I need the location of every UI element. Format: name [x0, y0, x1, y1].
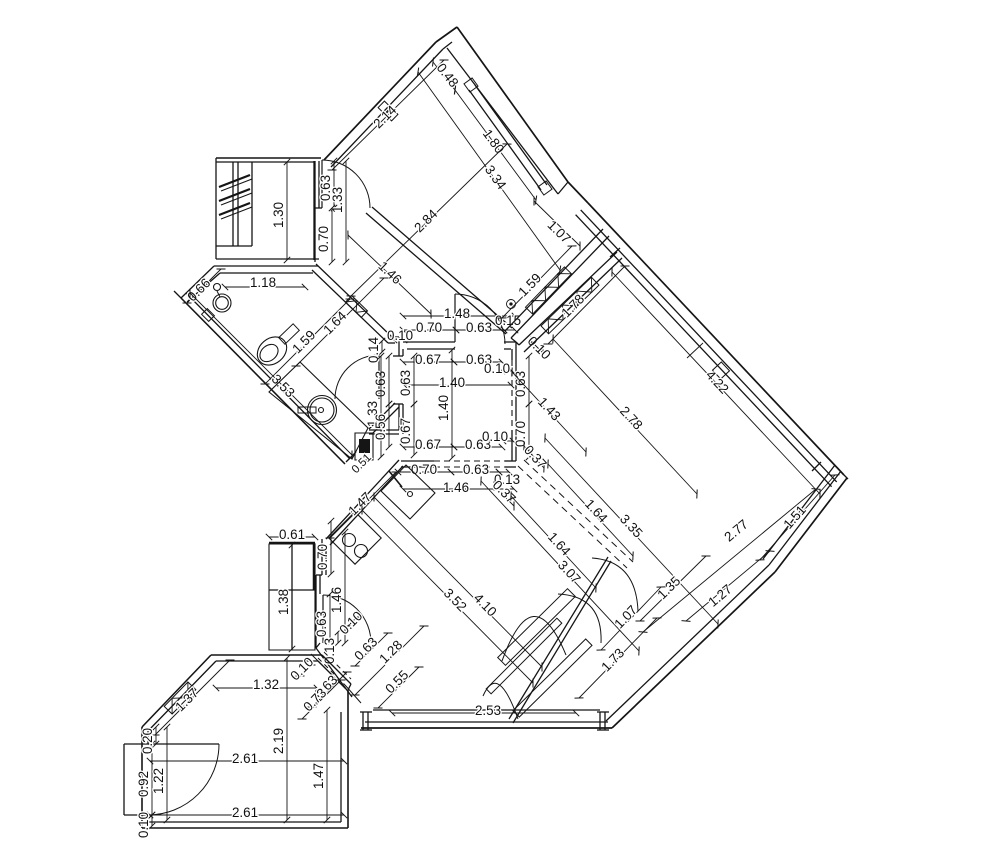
- svg-text:0.70: 0.70: [513, 421, 528, 447]
- svg-text:0.67: 0.67: [415, 437, 441, 452]
- svg-text:1.18: 1.18: [250, 275, 276, 290]
- svg-text:2.19: 2.19: [271, 728, 286, 754]
- svg-text:1.22: 1.22: [151, 768, 166, 794]
- svg-text:0.70: 0.70: [316, 226, 331, 252]
- svg-text:0.15: 0.15: [495, 313, 521, 328]
- svg-text:0.70: 0.70: [411, 462, 437, 477]
- svg-text:0.56: 0.56: [373, 414, 388, 440]
- svg-text:0.63: 0.63: [398, 370, 413, 396]
- svg-text:1.47: 1.47: [311, 763, 326, 789]
- svg-text:0.10: 0.10: [482, 429, 508, 444]
- svg-text:0.92: 0.92: [136, 771, 151, 797]
- svg-text:0.14: 0.14: [366, 336, 381, 363]
- svg-text:2.61: 2.61: [232, 805, 258, 820]
- svg-text:0.63: 0.63: [463, 462, 489, 477]
- svg-text:0.10: 0.10: [387, 328, 413, 343]
- svg-text:0.20: 0.20: [140, 728, 155, 754]
- svg-text:1.46: 1.46: [443, 480, 469, 495]
- svg-text:1.32: 1.32: [253, 677, 279, 692]
- svg-text:0.10: 0.10: [136, 812, 151, 838]
- svg-text:0.63: 0.63: [373, 371, 388, 397]
- svg-text:2.53: 2.53: [475, 703, 501, 718]
- svg-text:1.38: 1.38: [276, 589, 291, 615]
- svg-text:0.70: 0.70: [315, 544, 330, 570]
- svg-text:0.70: 0.70: [416, 320, 442, 335]
- svg-text:0.10: 0.10: [484, 361, 510, 376]
- svg-text:0.67: 0.67: [415, 352, 441, 367]
- svg-text:0.63: 0.63: [314, 611, 329, 637]
- svg-text:1.40: 1.40: [436, 395, 451, 421]
- svg-text:1.48: 1.48: [444, 306, 470, 321]
- svg-text:0.63: 0.63: [466, 320, 492, 335]
- svg-text:0.13: 0.13: [322, 638, 337, 664]
- svg-text:2.61: 2.61: [232, 751, 258, 766]
- svg-text:1.46: 1.46: [329, 587, 344, 613]
- svg-text:0.61: 0.61: [279, 527, 305, 542]
- svg-text:0.67: 0.67: [398, 418, 413, 444]
- svg-text:1.30: 1.30: [271, 202, 286, 228]
